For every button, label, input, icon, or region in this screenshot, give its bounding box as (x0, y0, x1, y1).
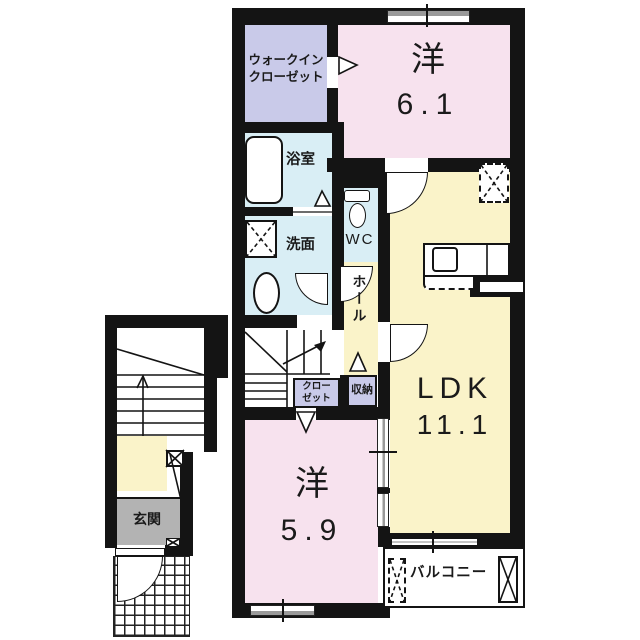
storage-label: 収納 (347, 384, 377, 396)
washroom-label: 洗面 (286, 238, 315, 254)
western-room-5-9 (245, 420, 378, 603)
window-ldk-balcony (392, 537, 477, 547)
toilet-bowl (349, 203, 366, 228)
washbasin-oval (253, 272, 280, 314)
washroom-door-gap (297, 315, 330, 330)
kitchen-counter-overhang (423, 277, 473, 290)
wic-opening (327, 57, 338, 88)
closet-label: クロー ゼット (293, 381, 340, 406)
wall-wash-bottom (245, 315, 297, 328)
hall-label: ホール (351, 274, 366, 354)
bathtub (245, 136, 283, 204)
wall-ldk-bottom-r (477, 533, 510, 547)
ls-wall-left (105, 315, 117, 548)
floorplan-canvas: ウォークイン クローゼット 洋 6.1 浴室 洗面 WC ホール クロー ゼット… (0, 0, 640, 640)
wall-stairs-bottom-l (232, 407, 296, 420)
entry-door-leaf (115, 548, 165, 556)
ls-hall-floor (117, 436, 167, 494)
kitchen-sink (432, 247, 458, 272)
ls-wall-right-mid (204, 378, 217, 452)
ldk-label: LDK (400, 372, 510, 405)
kitchen-pass-slot (480, 282, 523, 292)
ls-genkan-step (117, 491, 180, 497)
sliding-door-west2-lower (377, 493, 389, 527)
ldk-size: 11.1 (398, 410, 512, 441)
fridge-space-box (479, 163, 509, 203)
hall-ldk-door-gap (378, 322, 390, 362)
walk-in-closet-label-line1: ウォークイン (248, 53, 323, 67)
balcony-water-heater-box (498, 556, 518, 603)
wall-left (232, 8, 245, 618)
window-west2-bottom (250, 605, 315, 616)
ls-pipe-space-box (166, 450, 184, 467)
wall-box-divider (340, 375, 347, 408)
western-room-2-label: 洋 (280, 466, 344, 503)
genkan-meter-box (166, 538, 180, 547)
wall-bath-bottom (245, 207, 293, 216)
western-room-1-label: 洋 (392, 42, 464, 79)
closet-label-line1: クロー (302, 381, 331, 392)
wall-wic-bottom (245, 122, 344, 133)
toilet-label: WC (340, 232, 380, 249)
sliding-door-west2-upper (377, 418, 389, 488)
walk-in-closet-label-line2: クローゼット (248, 70, 323, 84)
ls-wall-right-block (204, 315, 228, 378)
wall-top (232, 8, 525, 25)
window-top (387, 10, 470, 23)
west1-door-gap (385, 158, 428, 172)
balcony-hatch-box (388, 558, 406, 603)
entrance-label: 玄関 (119, 512, 175, 527)
washer-space-box (245, 220, 277, 258)
ls-stairwell (117, 328, 204, 452)
toilet-tank (344, 190, 370, 202)
western-room-1-size: 6.1 (383, 88, 473, 121)
closet-door-gap (296, 407, 316, 420)
walk-in-closet-label: ウォークイン クローゼット (246, 52, 326, 86)
western-room-2-size: 5.9 (268, 514, 356, 547)
closet-label-line2: ゼット (302, 393, 331, 404)
bath-door-gap (293, 207, 332, 216)
balcony-label: バルコニー (410, 566, 487, 582)
wall-wc-top (344, 172, 378, 188)
bathroom-label: 浴室 (286, 153, 315, 169)
wall-wic-right-up (327, 25, 338, 57)
